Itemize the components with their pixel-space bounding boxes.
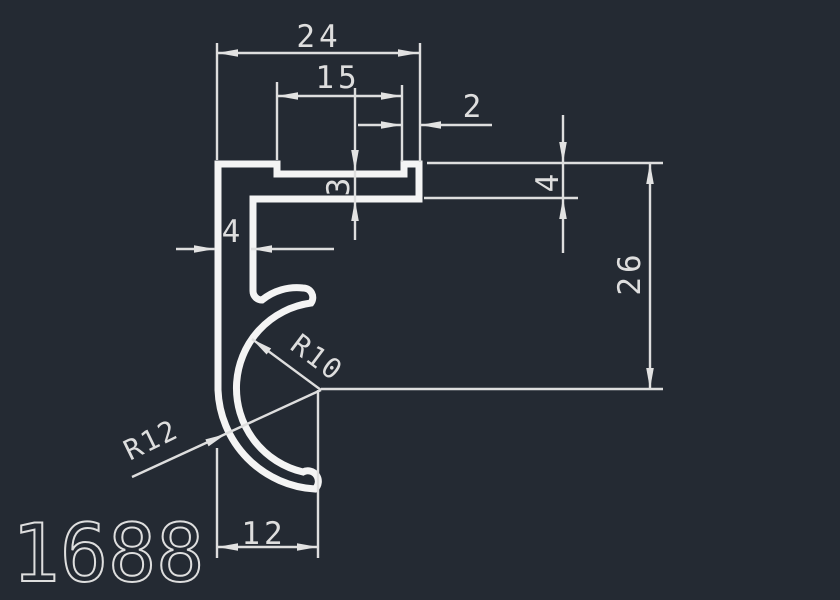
dim-label-flange-thickness: 4 <box>530 170 566 193</box>
part-number: 1688 <box>12 507 205 600</box>
dim-label-lip-width: 2 <box>463 89 486 125</box>
technical-drawing-canvas: 24 15 2 3 4 4 <box>0 0 840 600</box>
dim-label-center-height: 26 <box>612 250 648 295</box>
dim-label-leg-width: 4 <box>222 214 245 250</box>
dim-label-overall-width: 24 <box>296 19 341 55</box>
dim-label-recess-thickness: 3 <box>321 174 357 197</box>
dim-label-groove-offset: 12 <box>241 516 286 552</box>
